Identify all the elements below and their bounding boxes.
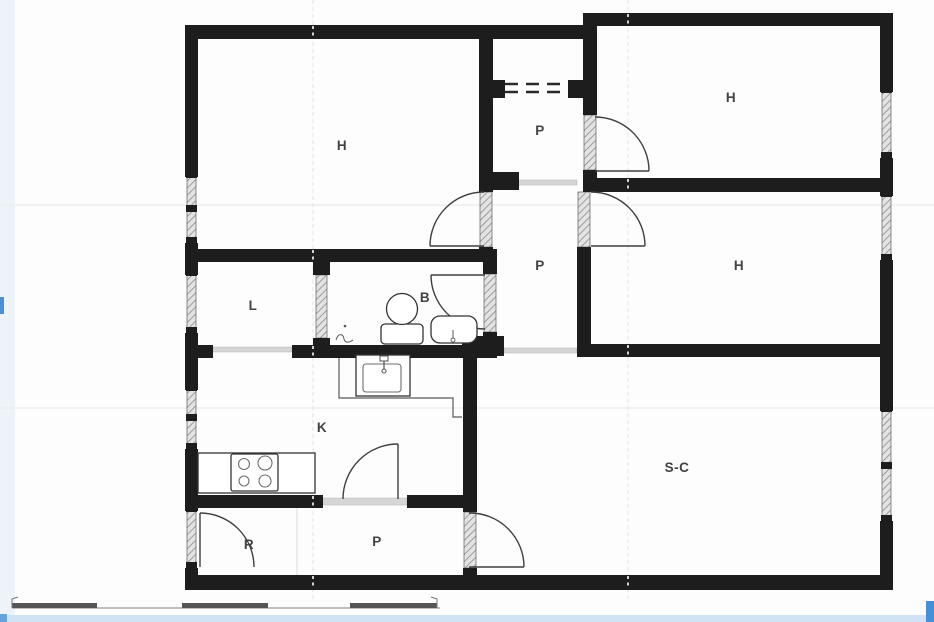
door-reveal — [484, 274, 496, 332]
room-label-l-room: L — [249, 298, 258, 313]
wall-segment — [198, 345, 213, 358]
wall-segment — [407, 495, 463, 508]
room-label-b-bathroom: B — [420, 290, 430, 305]
wall-pier — [568, 80, 583, 98]
glazed-partition-icon — [316, 275, 327, 338]
door-swing-icon — [591, 192, 645, 246]
wall-segment — [313, 338, 330, 358]
floor-drain-icon — [336, 325, 353, 342]
room-label-k-kitchen: K — [317, 420, 327, 435]
room-label-p-corridor: P — [535, 258, 545, 273]
room-label-r-room: R — [244, 537, 254, 552]
wall-segment — [185, 249, 497, 262]
wall-segment — [577, 247, 591, 357]
room-label-p-bottom: P — [372, 534, 382, 549]
left-edge-marker — [0, 297, 4, 314]
wall-segment — [577, 344, 893, 357]
wall-segment — [185, 25, 198, 177]
fixtures — [198, 294, 477, 494]
scrollbar-track[interactable] — [0, 615, 934, 622]
wall-segment — [483, 262, 497, 274]
toilet-icon — [381, 294, 423, 345]
wall-segment — [463, 344, 477, 512]
window-icon — [187, 511, 196, 568]
door-swing-icon — [595, 117, 649, 171]
threshold — [504, 348, 577, 353]
room-label-h-mid-right: H — [734, 258, 744, 273]
wall-segment — [313, 262, 330, 275]
stove-icon — [198, 453, 315, 493]
window-icon — [882, 196, 891, 260]
floorplan-svg: H P H H P L B K R P S-C — [0, 0, 934, 622]
scrollbar-thumb[interactable] — [926, 601, 934, 622]
walls — [185, 13, 893, 590]
wall-segment — [583, 13, 893, 26]
scale-bar-segment — [350, 603, 437, 608]
scale-bar — [12, 597, 440, 608]
wall-segment — [185, 495, 323, 508]
door-swing-icon — [343, 444, 398, 499]
scale-bar-segment — [182, 603, 268, 608]
scrollbar-corner — [0, 614, 7, 622]
wall-segment — [479, 39, 493, 192]
floorplan-canvas: H P H H P L B K R P S-C — [0, 0, 934, 622]
wall-segment — [463, 568, 477, 590]
wall-segment — [583, 13, 597, 115]
room-label-p-top: P — [535, 123, 545, 138]
wall-segment — [493, 172, 519, 190]
door-swing-icon — [469, 513, 524, 567]
wall-segment — [880, 13, 893, 92]
door-reveal — [578, 192, 590, 247]
wall-segment — [185, 575, 893, 590]
wall-pier — [490, 80, 505, 98]
door-reveal — [584, 115, 596, 170]
wall-segment — [185, 333, 198, 390]
room-label-h-top-right: H — [726, 90, 736, 105]
door-swing-icon — [430, 192, 484, 246]
room-label-h-top-left: H — [337, 138, 347, 153]
door-reveal — [480, 192, 492, 247]
wall-segment — [185, 25, 590, 39]
window-icon — [187, 275, 196, 333]
threshold — [213, 347, 292, 352]
door-reveal — [464, 512, 476, 568]
overhead-beam-dashes — [505, 84, 567, 92]
wall-segment — [583, 178, 893, 192]
threshold — [323, 498, 407, 505]
wall-segment — [880, 260, 893, 411]
wall-segment — [479, 247, 493, 262]
window-icon — [882, 92, 891, 158]
room-label-sc-living: S-C — [665, 460, 690, 475]
bathtub-icon — [431, 316, 477, 343]
wall-segment — [292, 345, 313, 358]
scale-bar-segment — [12, 603, 97, 608]
